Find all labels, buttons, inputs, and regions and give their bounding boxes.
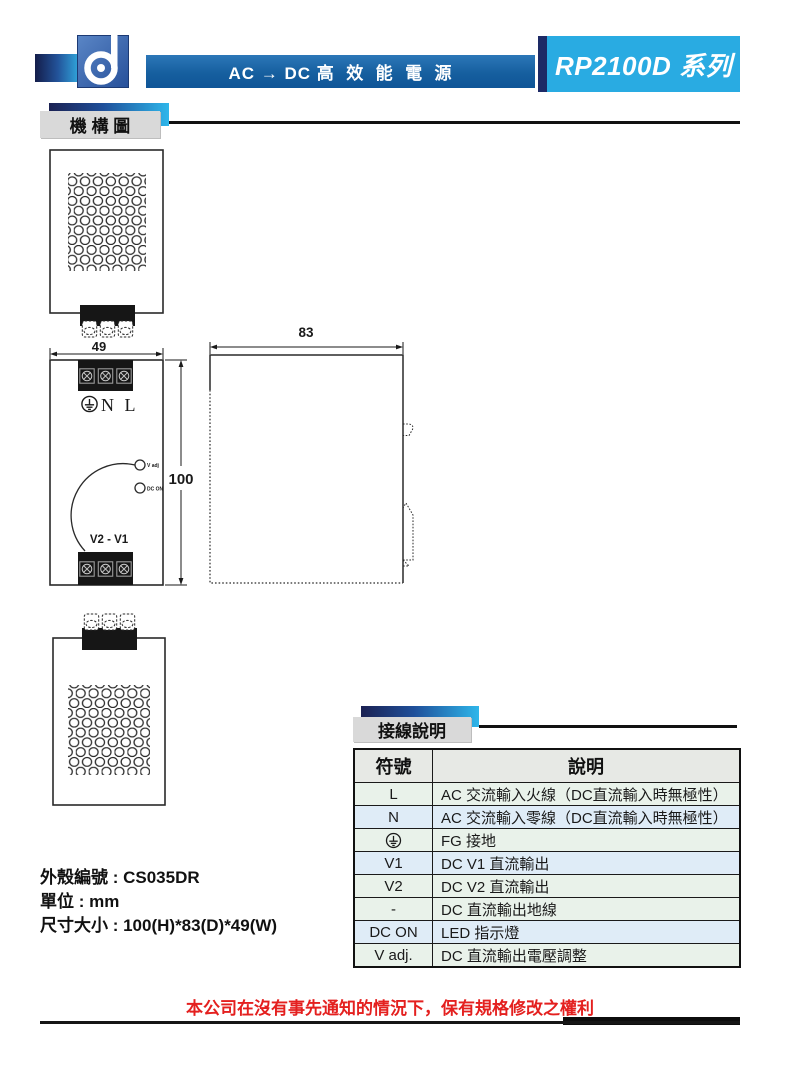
output-terminal-labels: V2 - V1 (90, 534, 129, 546)
symbol-cell: - (354, 898, 433, 921)
description-cell: LED 指示燈 (433, 921, 741, 944)
terminal-screw-icon (98, 369, 112, 383)
din-rail-hook-upper (403, 424, 413, 436)
symbol-cell: L (354, 783, 433, 806)
symbol-cell: V adj. (354, 944, 433, 968)
width-dimension (50, 348, 163, 359)
terminal-screw-icon (80, 562, 94, 576)
dc-on-label: DC ON (147, 487, 164, 493)
side-view-outline-solid (210, 355, 403, 583)
vent-holes-field (68, 685, 150, 775)
earth-ground-icon (385, 832, 402, 849)
terminal-block (82, 628, 137, 650)
wiring-section-title: 接線說明 (378, 717, 446, 742)
vent-holes-field (68, 173, 146, 271)
footer-rule (40, 1021, 740, 1024)
input-terminal-labels: N L (101, 395, 139, 415)
mech-section-title: 機 構 圖 (70, 112, 130, 137)
symbol-cell (354, 829, 433, 852)
terminal-screw-icon (117, 562, 131, 576)
description-cell: DC 直流輸出地線 (433, 898, 741, 921)
table-row: FG 接地 (354, 829, 740, 852)
depth-dim-label: 83 (298, 325, 314, 340)
table-row: N AC 交流輸入零線（DC直流輸入時無極性） (354, 806, 740, 829)
case-info-block: 外殼編號 : CS035DR 單位 : mm 尺寸大小 : 100(H)*83(… (40, 866, 360, 938)
header-accent-bar (35, 54, 77, 82)
table-row: V adj. DC 直流輸出電壓調整 (354, 944, 740, 968)
case-number: 外殼編號 : CS035DR (40, 866, 360, 890)
front-view-outline (50, 360, 163, 585)
series-badge: RP2100D 系列 (538, 36, 740, 92)
terminal-screw-icon (102, 614, 116, 630)
terminal-screw-icon (118, 321, 132, 337)
description-cell: DC V1 直流輸出 (433, 852, 741, 875)
bottom-view-drawing (50, 610, 172, 810)
mech-section-rule (169, 121, 740, 124)
column-header-description: 說明 (433, 749, 741, 783)
vadj-pot-icon (135, 460, 145, 470)
table-row: - DC 直流輸出地線 (354, 898, 740, 921)
height-dim-label: 100 (168, 471, 193, 488)
terminal-screw-icon (98, 562, 112, 576)
depth-dimension (210, 342, 403, 354)
vadj-label: V adj (147, 463, 160, 469)
dc-on-led-icon (135, 483, 145, 493)
terminal-screw-icon (80, 369, 94, 383)
series-badge-label: RP2100D 系列 (555, 46, 732, 83)
terminal-screw-icon (117, 369, 131, 383)
front-view-drawing: 49 N L (45, 338, 200, 590)
mech-section-header: 機 構 圖 (40, 111, 160, 138)
datasheet-page: AC → DC 高 效 能 電 源 RP2100D 系列 機 構 圖 (0, 0, 785, 1087)
din-rail-clip-lower (403, 503, 413, 566)
table-header-row: 符號 說明 (354, 749, 740, 783)
symbol-cell: V1 (354, 852, 433, 875)
top-view-drawing (48, 147, 168, 342)
symbol-cell: V2 (354, 875, 433, 898)
table-row: DC ON LED 指示燈 (354, 921, 740, 944)
terminal-screw-icon (84, 614, 98, 630)
description-cell: AC 交流輸入零線（DC直流輸入時無極性） (433, 806, 741, 829)
table-row: V2 DC V2 直流輸出 (354, 875, 740, 898)
terminal-screw-icon (100, 321, 114, 337)
header-title-bar: AC → DC 高 效 能 電 源 (146, 55, 535, 88)
wiring-section-rule (479, 725, 737, 728)
unit-note: 單位 : mm (40, 890, 360, 914)
symbol-cell: N (354, 806, 433, 829)
disclaimer-text: 本公司在沒有事先通知的情況下，保有規格修改之權利 (40, 994, 740, 1019)
overall-size: 尺寸大小 : 100(H)*83(D)*49(W) (40, 914, 360, 938)
terminal-screw-icon (82, 321, 96, 337)
terminal-screw-icon (120, 614, 134, 630)
table-row: L AC 交流輸入火線（DC直流輸入時無極性） (354, 783, 740, 806)
column-header-symbol: 符號 (354, 749, 433, 783)
side-view-drawing: 83 (205, 320, 419, 588)
side-view-outline-hidden (210, 390, 403, 583)
wiring-table: 符號 說明 L AC 交流輸入火線（DC直流輸入時無極性） N AC 交流輸入零… (353, 748, 741, 968)
symbol-cell: DC ON (354, 921, 433, 944)
description-cell: FG 接地 (433, 829, 741, 852)
wiring-section-header: 接線說明 (353, 717, 471, 742)
description-cell: DC 直流輸出電壓調整 (433, 944, 741, 968)
brand-logo-icon (77, 35, 129, 88)
description-cell: AC 交流輸入火線（DC直流輸入時無極性） (433, 783, 741, 806)
header-tagline: AC → DC 高 效 能 電 源 (228, 59, 452, 84)
table-row: V1 DC V1 直流輸出 (354, 852, 740, 875)
width-dim-label: 49 (92, 339, 106, 354)
description-cell: DC V2 直流輸出 (433, 875, 741, 898)
